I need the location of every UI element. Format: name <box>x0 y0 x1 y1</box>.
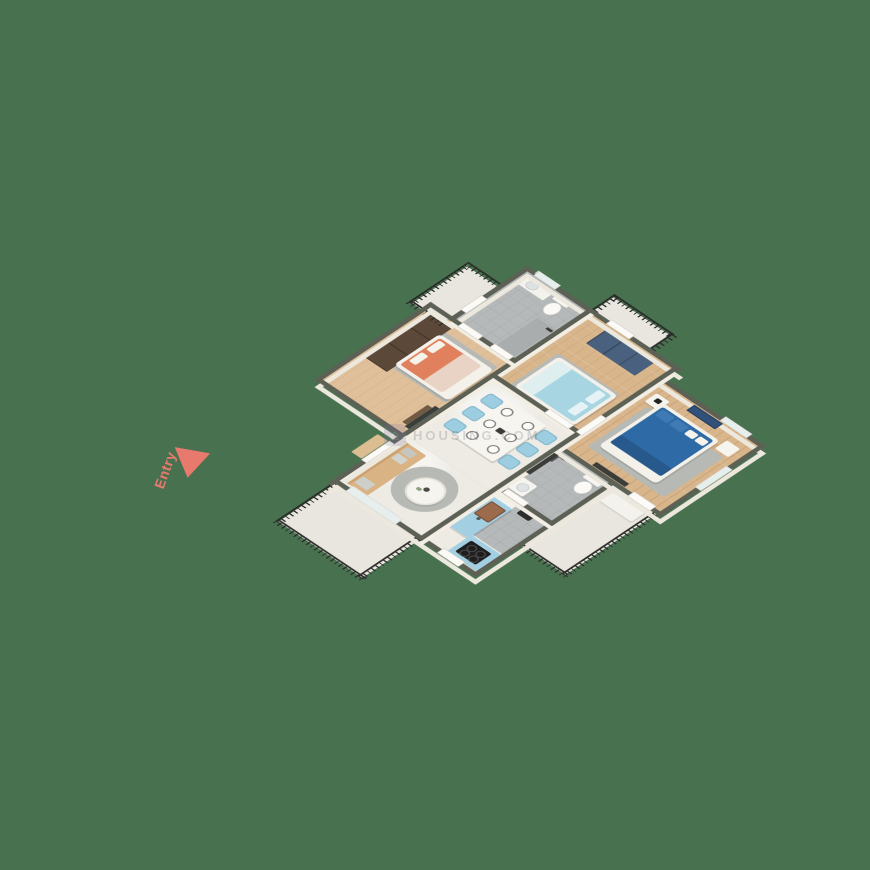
plant-icon <box>415 487 422 492</box>
faucet-icon <box>475 517 481 521</box>
house-icon: ⌂ <box>384 424 406 446</box>
wash-basin <box>514 481 532 493</box>
place-setting <box>498 406 516 418</box>
watermark-text: HOUSING.COM <box>413 428 541 443</box>
floor-plan-scene: Entry ⌂ HOUSING.COM <box>0 0 870 870</box>
decor-item <box>422 487 431 493</box>
entry-arrow-icon <box>170 447 210 481</box>
watermark: ⌂ HOUSING.COM <box>384 424 541 446</box>
